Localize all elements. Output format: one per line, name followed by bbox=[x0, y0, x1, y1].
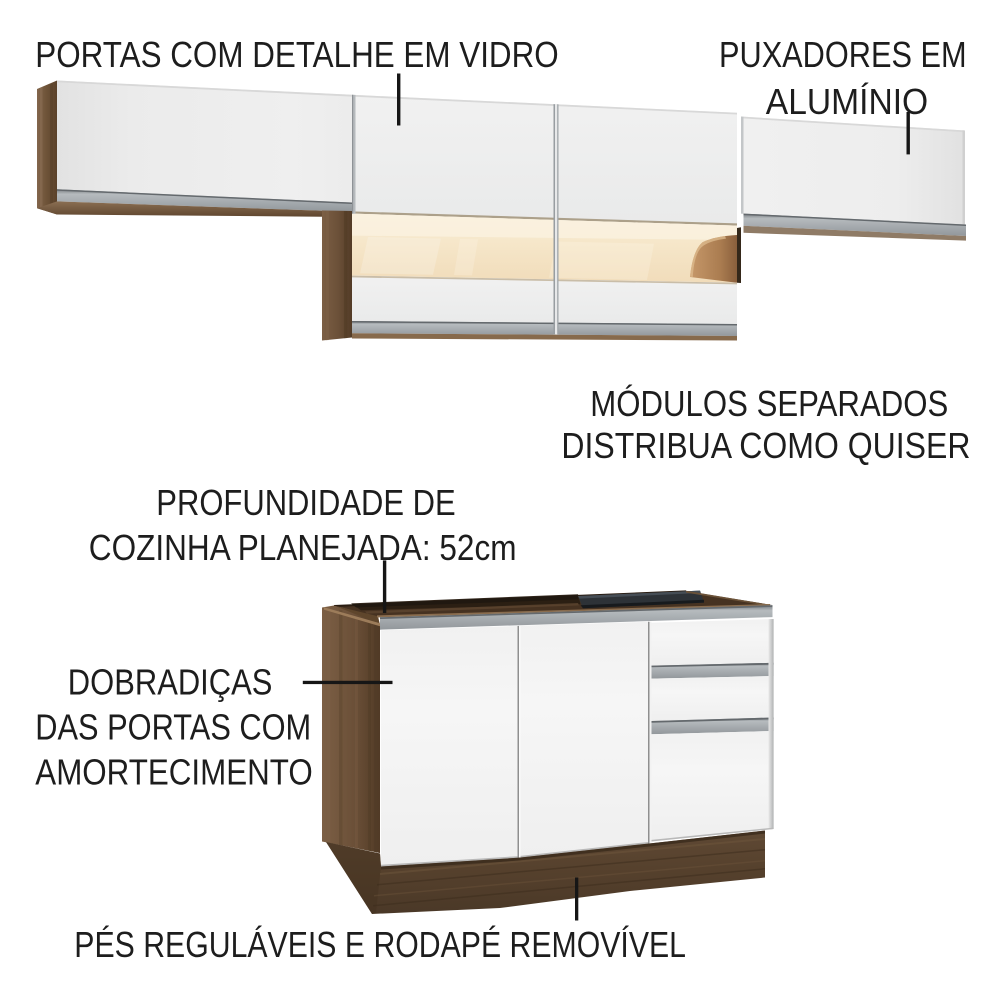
svg-text:PORTAS COM DETALHE EM VIDRO: PORTAS COM DETALHE EM VIDRO bbox=[35, 34, 558, 75]
svg-text:PÉS REGULÁVEIS E RODAPÉ REMOVÍ: PÉS REGULÁVEIS E RODAPÉ REMOVÍVEL bbox=[74, 924, 686, 965]
svg-text:DOBRADIÇAS: DOBRADIÇAS bbox=[68, 662, 273, 703]
svg-text:ALUMÍNIO: ALUMÍNIO bbox=[766, 81, 928, 122]
svg-text:DAS PORTAS COM: DAS PORTAS COM bbox=[35, 707, 311, 748]
svg-text:COZINHA PLANEJADA: 52cm: COZINHA PLANEJADA: 52cm bbox=[89, 527, 517, 568]
svg-text:PUXADORES EM: PUXADORES EM bbox=[719, 34, 967, 75]
svg-text:PROFUNDIDADE DE: PROFUNDIDADE DE bbox=[156, 482, 455, 523]
svg-text:AMORTECIMENTO: AMORTECIMENTO bbox=[35, 752, 312, 793]
svg-text:DISTRIBUA COMO QUISER: DISTRIBUA COMO QUISER bbox=[561, 425, 970, 466]
svg-text:MÓDULOS SEPARADOS: MÓDULOS SEPARADOS bbox=[590, 383, 948, 424]
